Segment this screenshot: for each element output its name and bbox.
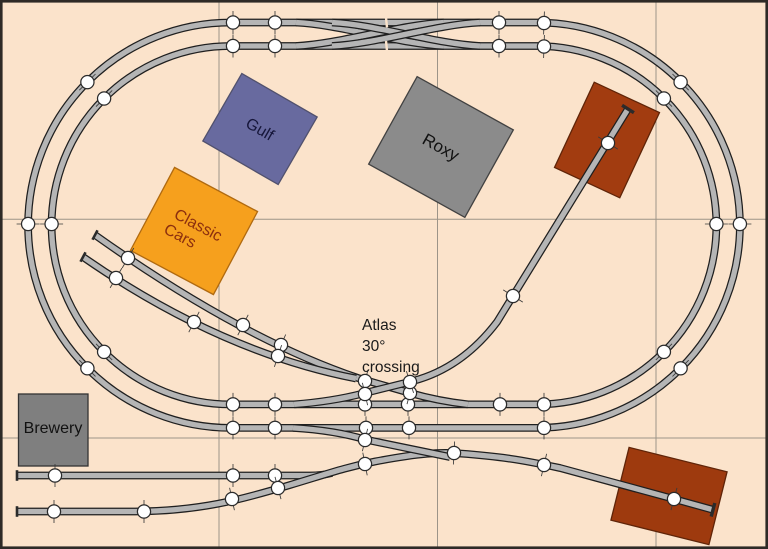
svg-text:Brewery: Brewery xyxy=(24,420,83,437)
